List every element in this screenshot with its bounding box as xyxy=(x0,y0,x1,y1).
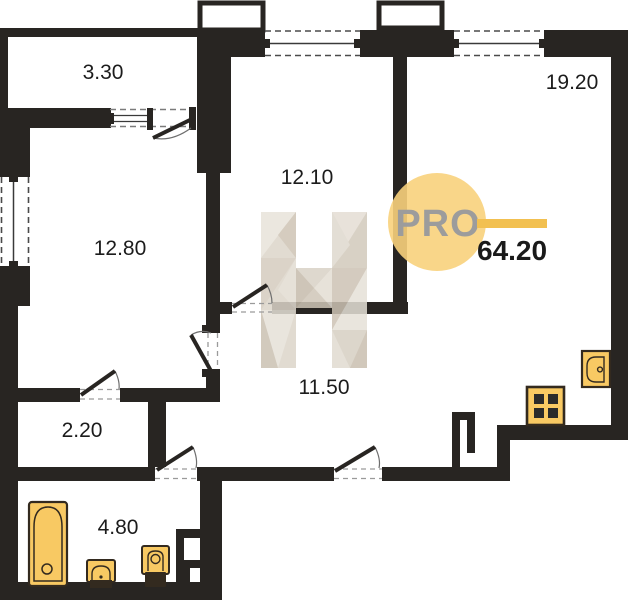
room-label-bedroom: 12.10 xyxy=(281,166,334,189)
wall-balcony-bottom xyxy=(7,108,111,128)
total-area-label: 64.20 xyxy=(477,235,547,266)
walls xyxy=(0,28,628,600)
wall-left-mid xyxy=(0,266,30,306)
door-wardrobe xyxy=(80,371,120,399)
wall-corridor-bottom-a xyxy=(0,467,155,481)
wall-corridor-bottom-c xyxy=(382,467,510,481)
room-label-balcony: 3.30 xyxy=(83,61,124,84)
kitchen-sink-icon xyxy=(582,351,610,387)
logo-line xyxy=(477,219,547,228)
wall-living-bottom-b xyxy=(120,388,220,402)
shaft-mid xyxy=(176,560,206,568)
room-label-living: 12.80 xyxy=(94,237,147,260)
shaft-block xyxy=(176,568,190,582)
wall-balcony-top xyxy=(0,28,208,37)
exterior-ledges xyxy=(200,3,442,30)
wall-top-c xyxy=(544,30,615,57)
room-label-bathroom: 4.80 xyxy=(98,516,139,539)
floor-plan-page: 3.30 12.10 19.20 12.80 11.50 2.20 4.80 P… xyxy=(0,0,628,600)
toilet-icon xyxy=(142,546,169,587)
room-label-kitchenliving: 19.20 xyxy=(546,71,599,94)
door-living xyxy=(191,331,218,371)
wall-column xyxy=(197,37,231,173)
window-bedroom-top xyxy=(262,31,362,56)
room-label-hallway: 11.50 xyxy=(299,376,350,399)
brand-logo: PRO 64.20 xyxy=(388,173,547,271)
wall-balcony-left xyxy=(0,28,8,109)
wall-hall-bedroom-a xyxy=(220,302,232,314)
wall-corridor-bottom-b xyxy=(197,467,334,481)
duct-left xyxy=(452,412,460,471)
wall-kitchen-bottom xyxy=(497,425,628,440)
stove-icon xyxy=(527,387,564,425)
ledge-outline xyxy=(379,3,442,28)
bathtub-icon xyxy=(29,502,67,586)
wall-top-b xyxy=(360,30,454,57)
wall-right xyxy=(611,30,628,440)
door-entrance xyxy=(334,447,382,479)
sink-icon xyxy=(87,560,115,588)
wall-wardrobe-right xyxy=(148,402,166,467)
door-balcony xyxy=(147,107,196,139)
floor-plan: 3.30 12.10 19.20 12.80 11.50 2.20 4.80 P… xyxy=(0,0,628,600)
wall-left-lower xyxy=(0,302,18,600)
ledge-outline xyxy=(200,3,263,30)
window-living-left xyxy=(2,175,29,268)
watermark-h xyxy=(261,212,367,368)
window-kitchenliving-top xyxy=(451,31,547,56)
room-label-wardrobe: 2.20 xyxy=(62,419,103,442)
wall-living-bottom-a xyxy=(8,388,80,402)
logo-text: PRO xyxy=(395,203,480,245)
duct-right xyxy=(467,412,475,453)
wall-living-bedroom xyxy=(206,173,220,325)
